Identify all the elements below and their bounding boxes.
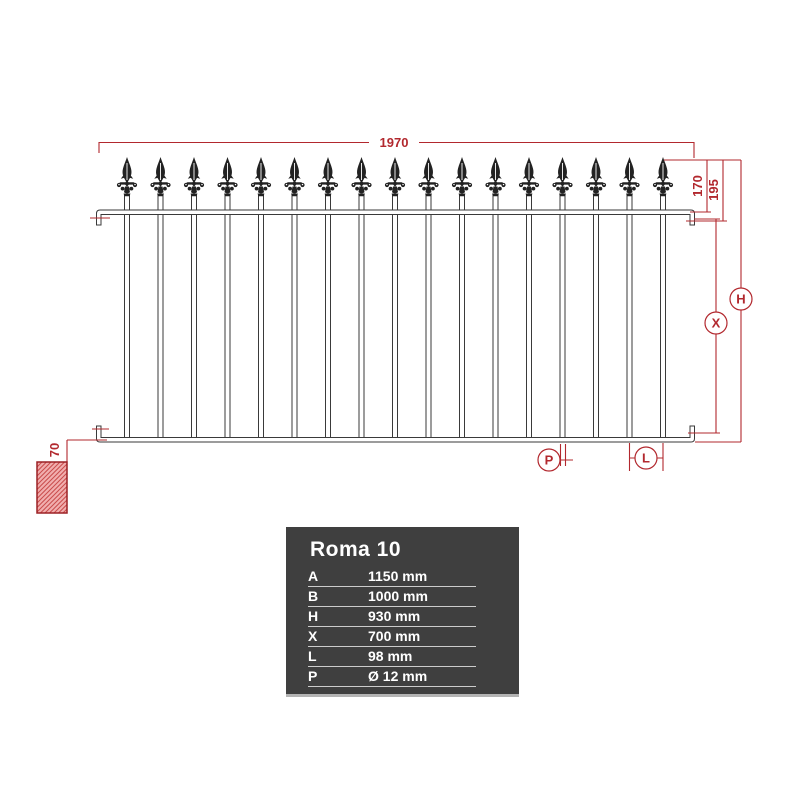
spear-finial-icon (385, 157, 405, 196)
dim-195-label: 195 (706, 179, 721, 201)
spear-finial-icon (452, 157, 472, 196)
spec-row-A: A 1150 mm (308, 567, 476, 587)
spear-finial-icon (586, 157, 606, 196)
spec-key: P (308, 667, 368, 686)
ref-letter-H: H (736, 292, 745, 307)
spear-finial-icon (251, 157, 271, 196)
spec-key: L (308, 647, 368, 666)
spec-value: 1150 mm (368, 567, 476, 586)
diagram-canvas: 1970 170 195 70 H X P L Roma 10 A 1150 m… (0, 0, 800, 800)
spec-table-title: Roma 10 (310, 538, 519, 562)
spec-row-L: L 98 mm (308, 647, 476, 667)
fence-bar (493, 194, 498, 442)
fence-bar (527, 194, 532, 442)
fence-bar (393, 194, 398, 442)
fence-bar (225, 194, 230, 442)
fence-bar (125, 194, 130, 442)
spec-table: Roma 10 A 1150 mm B 1000 mm H 930 mm X 7… (286, 527, 519, 697)
fence-bar (426, 194, 431, 442)
spec-value: 930 mm (368, 607, 476, 626)
dim-P-line (560, 444, 573, 466)
spear-finial-icon (117, 157, 137, 196)
spec-key: B (308, 587, 368, 606)
spec-key: H (308, 607, 368, 626)
fence-bar (158, 194, 163, 442)
spear-finial-icon (150, 157, 170, 196)
fence-bar (560, 194, 565, 442)
spear-finial-icon (619, 157, 639, 196)
spear-finial-icon (653, 157, 673, 196)
spec-row-P: P Ø 12 mm (308, 667, 476, 687)
ref-circles: H X P L (538, 288, 752, 471)
spec-value: Ø 12 mm (368, 667, 476, 686)
dim-70-label: 70 (47, 443, 62, 457)
fence-bars (117, 157, 673, 442)
wall-section-hatch (37, 462, 67, 513)
dim-70-line (67, 440, 107, 462)
spear-finial-icon (217, 157, 237, 196)
spec-key: X (308, 627, 368, 646)
spear-finial-icon (485, 157, 505, 196)
spear-finial-icon (318, 157, 338, 196)
fence-bar (359, 194, 364, 442)
dim-170-label: 170 (690, 175, 705, 197)
fence-bar (460, 194, 465, 442)
ref-letter-P: P (545, 453, 554, 468)
spear-finial-icon (552, 157, 572, 196)
fence-bar (627, 194, 632, 442)
dim-width-label: 1970 (380, 135, 409, 150)
spec-value: 700 mm (368, 627, 476, 646)
spec-row-B: B 1000 mm (308, 587, 476, 607)
spear-finial-icon (418, 157, 438, 196)
spear-finial-icon (519, 157, 539, 196)
fence-bar (192, 194, 197, 442)
spec-row-H: H 930 mm (308, 607, 476, 627)
ref-letter-L: L (642, 451, 650, 466)
spec-row-X: X 700 mm (308, 627, 476, 647)
spec-value: 98 mm (368, 647, 476, 666)
fence-bar (661, 194, 666, 442)
fence-bar (292, 194, 297, 442)
fence-bar (594, 194, 599, 442)
fence-bar (326, 194, 331, 442)
spear-finial-icon (351, 157, 371, 196)
spec-value: 1000 mm (368, 587, 476, 606)
spear-finial-icon (184, 157, 204, 196)
fence-bar (259, 194, 264, 442)
spec-key: A (308, 567, 368, 586)
spear-finial-icon (284, 157, 304, 196)
ref-letter-X: X (712, 316, 721, 331)
